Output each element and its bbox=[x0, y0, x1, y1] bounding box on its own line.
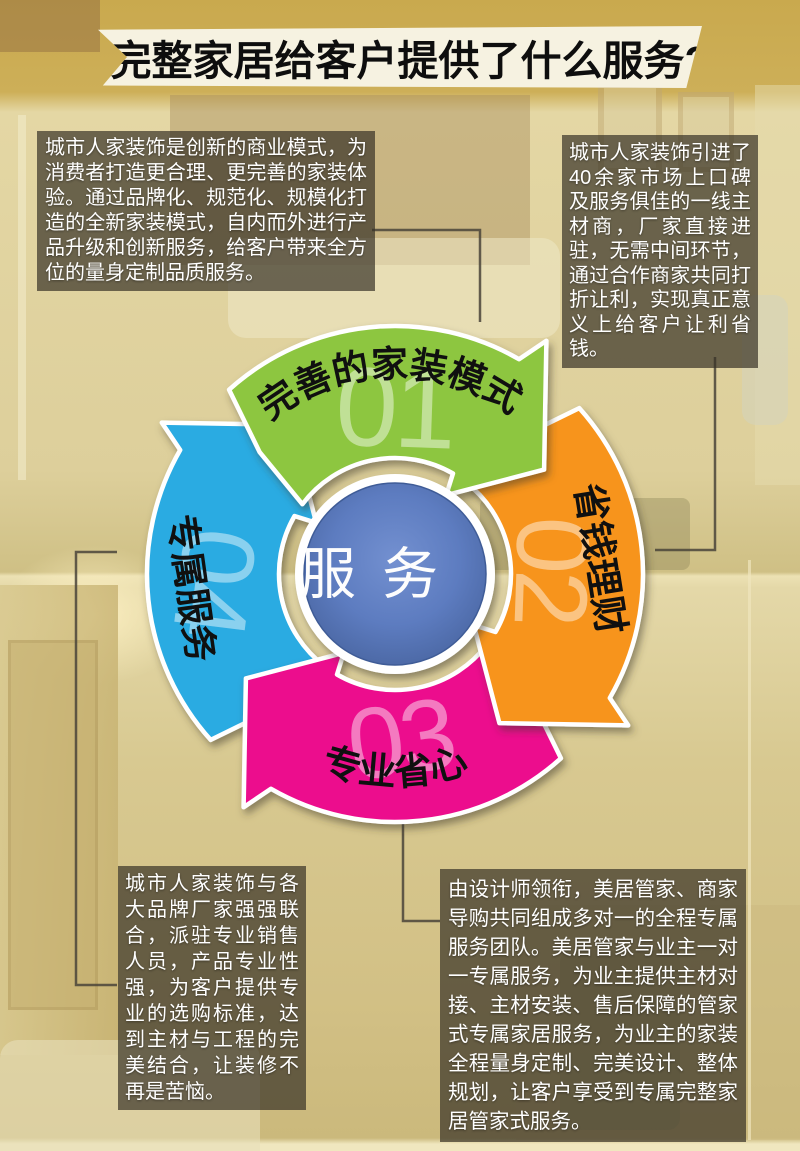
connector-top-right bbox=[655, 357, 715, 550]
text-block-top-left: 城市人家装饰是创新的商业模式，为消费者打造更合理、更完善的家装体验。通过品牌化、… bbox=[37, 131, 375, 291]
text-block-top-right: 城市人家装饰引进了40余家市场上口碑及服务俱佳的一线主材商，厂家直接进驻，无需中… bbox=[562, 135, 758, 368]
connector-bottom-right bbox=[403, 818, 440, 921]
connector-top-left bbox=[372, 230, 480, 322]
center-label: 服务 bbox=[300, 543, 464, 606]
center-circle: 服务 bbox=[295, 474, 495, 674]
poster: 完整家居给客户提供了什么服务? 04专属服务03专业省心02省钱理财01完善的家… bbox=[0, 0, 800, 1151]
connector-bottom-left bbox=[76, 552, 117, 985]
text-block-bottom-left: 城市人家装饰与各大品牌厂家强强联合，派驻专业销售人员，产品专业性强，为客户提供专… bbox=[118, 866, 306, 1110]
text-block-bottom-right: 由设计师领衔，美居管家、商家导购共同组成多对一的全程专属服务团队。美居管家与业主… bbox=[440, 869, 746, 1142]
